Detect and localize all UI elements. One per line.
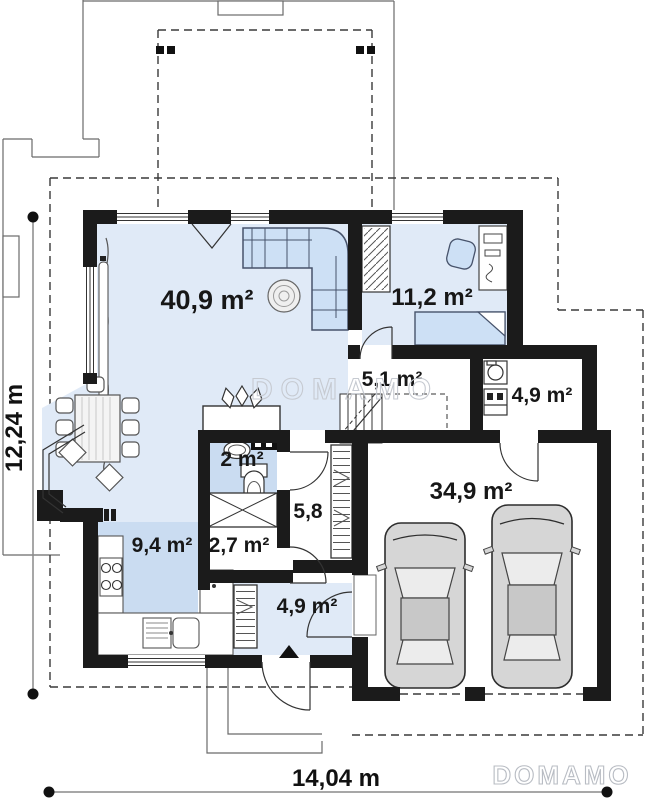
wc-door — [290, 452, 328, 490]
cars — [354, 505, 580, 688]
dimension-label-width: 14,04 m — [292, 765, 380, 792]
room-label-utility-room: 4,9 m² — [512, 384, 573, 407]
room-label-office: 11,2 m² — [391, 284, 472, 311]
room-label-entry-hall: 4,9 m² — [277, 595, 338, 618]
pantry-wardrobe — [208, 493, 277, 527]
room-label-garage: 34,9 m² — [430, 478, 513, 505]
corridor-wardrobe — [331, 445, 352, 558]
garage-door-leaf — [354, 575, 376, 635]
car — [377, 523, 474, 688]
room-label-pantry: 2,7 m² — [209, 534, 270, 557]
room-label-kitchen: 9,4 m² — [132, 534, 193, 557]
watermark-center: DOMAMO — [251, 373, 439, 406]
kitchen-sink — [143, 618, 199, 648]
floor-plan-image: 40,9 m² 11,2 m² 5,1 m² 4,9 m² 2 m² 5,8 2… — [0, 0, 645, 800]
round-rug — [268, 280, 300, 312]
utility-door — [500, 443, 538, 481]
room-label-living-room: 40,9 m² — [160, 285, 253, 315]
front-door — [262, 662, 310, 710]
utility-fixtures — [484, 361, 507, 415]
entry-wardrobe — [234, 585, 257, 648]
room-label-wc: 2 m² — [220, 448, 263, 471]
terrace-posts — [156, 46, 375, 54]
dimension-label-height: 12,24 m — [1, 384, 28, 472]
room-label-corridor: 5,8 — [293, 500, 323, 523]
car — [484, 505, 581, 688]
floor-plan-svg: 40,9 m² 11,2 m² 5,1 m² 4,9 m² 2 m² 5,8 2… — [0, 0, 645, 800]
watermark-bottom: DOMAMO — [492, 760, 631, 790]
